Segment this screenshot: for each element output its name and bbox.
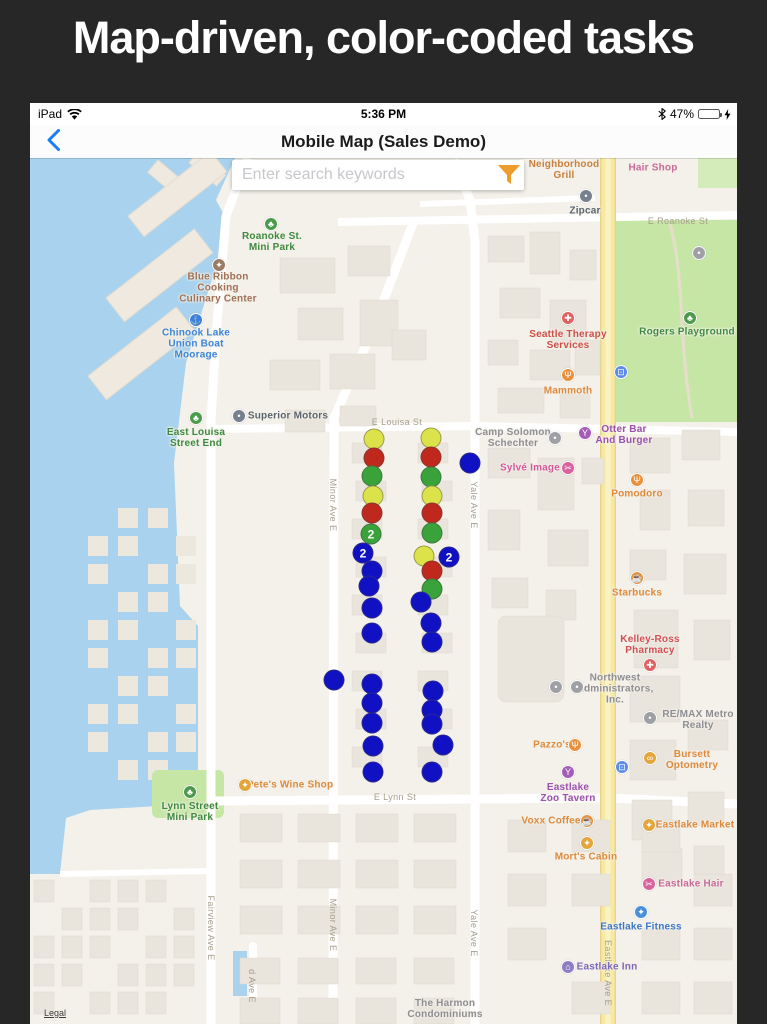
wifi-icon <box>67 109 82 120</box>
poi-icon-eastlake-market: ✦ <box>642 818 656 832</box>
filter-funnel-icon <box>498 165 520 185</box>
task-marker[interactable] <box>421 467 442 488</box>
task-marker[interactable] <box>363 762 384 783</box>
poi-label-re-max-metro-realty: RE/MAX MetroRealty <box>662 709 733 731</box>
poi-icon-starbucks: ☕ <box>630 571 644 585</box>
street-label-minor-ave-e: Minor Ave E <box>328 479 338 532</box>
task-marker[interactable] <box>363 736 384 757</box>
poi-label-kelley-ross-pharmacy: Kelley-RossPharmacy <box>620 634 679 656</box>
poi-icon-otter-bar-and-burger: Y <box>578 426 592 440</box>
poi-icon-east-louisa-street-end: ♣ <box>189 411 203 425</box>
poi-icon-roanoke-st-mini-park: ♣ <box>264 217 278 231</box>
task-marker[interactable] <box>433 735 454 756</box>
map-overlay: NeighborhoodGrillHair ShopZipcar•Rogers … <box>30 158 737 1024</box>
poi-label-seattle-therapy-services: Seattle TherapyServices <box>529 329 606 351</box>
poi-icon-pomodoro: Ψ <box>630 473 644 487</box>
task-marker[interactable] <box>421 447 442 468</box>
bluetooth-icon <box>658 108 666 120</box>
poi-label-eastlake-hair: Eastlake Hair <box>658 879 723 890</box>
task-marker[interactable] <box>422 523 443 544</box>
search-bar <box>232 160 524 190</box>
poi-label-neighborhood-grill: NeighborhoodGrill <box>529 159 600 181</box>
poi-label-bursett-optometry: BursettOptometry <box>666 749 718 771</box>
poi-label-zipcar: Zipcar <box>569 206 600 217</box>
poi-label-mammoth: Mammoth <box>544 386 593 397</box>
street-label-e-lynn-st: E Lynn St <box>374 792 416 802</box>
charging-bolt-icon <box>724 109 731 120</box>
poi-icon-office-dot-2: • <box>570 680 584 694</box>
poi-icon-mort-s-cabin: ✦ <box>580 836 594 850</box>
street-label-d-ave-e: d Ave E <box>247 969 257 1003</box>
battery-percent-label: 47% <box>670 107 694 121</box>
page-title: Mobile Map (Sales Demo) <box>30 125 737 158</box>
task-marker[interactable] <box>324 670 345 691</box>
poi-label-eastlake-inn: Eastlake Inn <box>577 962 638 973</box>
poi-label-eastlake-zoo-tavern: EastlakeZoo Tavern <box>540 782 595 804</box>
street-label-minor-ave-e: Minor Ave E <box>328 899 338 952</box>
poi-icon-rogers-playground: ♣ <box>683 311 697 325</box>
task-marker[interactable] <box>421 428 442 449</box>
poi-label-northwest-administrators-inc: NorthwestAdministrators,Inc. <box>577 673 654 706</box>
poi-icon-zipcar: • <box>579 189 593 203</box>
poi-label-the-harmon-condominiums: The HarmonCondominiums <box>407 998 482 1020</box>
poi-icon-re-max-metro-realty: • <box>643 711 657 725</box>
poi-label-camp-solomon-schechter: Camp SolomonSchechter <box>475 427 551 449</box>
ipad-screenshot: iPad 5:36 PM 47% <box>30 103 737 1024</box>
legal-link[interactable]: Legal <box>44 1008 66 1018</box>
poi-label-eastlake-market: Eastlake Market <box>656 820 735 831</box>
street-label-yale-ave-e: Yale Ave E <box>469 481 479 528</box>
poi-label-superior-motors: Superior Motors <box>248 411 328 422</box>
banner-title: Map-driven, color-coded tasks <box>73 12 694 64</box>
poi-label-mort-s-cabin: Mort's Cabin <box>555 852 618 863</box>
poi-icon-seattle-therapy-services: ✚ <box>561 311 575 325</box>
street-label-e-louisa-st: E Louisa St <box>372 417 422 427</box>
task-marker[interactable] <box>362 623 383 644</box>
poi-icon-voxx-coffee: ☕ <box>580 814 594 828</box>
poi-icon-eastlake-hair: ✂ <box>642 877 656 891</box>
poi-icon-kelley-ross-pharmacy: ✚ <box>643 658 657 672</box>
task-marker[interactable] <box>423 681 444 702</box>
poi-icon-pete-s-wine-shop: ✦ <box>238 778 252 792</box>
poi-label-pazzo-s: Pazzo's <box>533 740 571 751</box>
poi-label-starbucks: Starbucks <box>612 588 662 599</box>
nav-bar: Mobile Map (Sales Demo) <box>30 125 737 158</box>
task-marker[interactable] <box>411 592 432 613</box>
poi-icon-eastlake-zoo-tavern: Y <box>561 765 575 779</box>
poi-label-lynn-street-mini-park: Lynn StreetMini Park <box>162 801 219 823</box>
poi-label-voxx-coffee: Voxx Coffee <box>521 816 580 827</box>
task-marker[interactable] <box>422 503 443 524</box>
poi-icon-camp-solomon-schechter: • <box>548 431 562 445</box>
task-marker[interactable] <box>362 713 383 734</box>
poi-label-eastlake-fitness: Eastlake Fitness <box>600 922 682 933</box>
task-marker[interactable] <box>359 576 380 597</box>
clock: 5:36 PM <box>361 103 406 125</box>
poi-icon-lynn-street-mini-park: ♣ <box>183 785 197 799</box>
task-marker[interactable] <box>422 762 443 783</box>
task-marker[interactable] <box>362 674 383 695</box>
task-marker[interactable] <box>362 503 383 524</box>
street-label-e-roanoke-st: E Roanoke St <box>648 216 708 226</box>
poi-icon-transit-stop-1: ⊡ <box>614 365 628 379</box>
poi-icon-park-restroom: • <box>692 246 706 260</box>
task-marker[interactable] <box>362 466 383 487</box>
poi-label-east-louisa-street-end: East LouisaStreet End <box>167 427 225 449</box>
poi-icon-transit-stop-2: ⊡ <box>615 760 629 774</box>
task-marker[interactable] <box>460 453 481 474</box>
poi-icon-office-dot-1: • <box>549 680 563 694</box>
search-input[interactable] <box>232 160 494 190</box>
task-marker[interactable] <box>362 598 383 619</box>
task-marker[interactable] <box>362 693 383 714</box>
poi-icon-eastlake-fitness: ✦ <box>634 905 648 919</box>
marketing-banner: Map-driven, color-coded tasks <box>0 0 767 103</box>
poi-label-pete-s-wine-shop: Pete's Wine Shop <box>247 780 334 791</box>
filter-button[interactable] <box>494 160 524 190</box>
street-label-yale-ave-e: Yale Ave E <box>469 909 479 956</box>
poi-icon-mammoth: Ψ <box>561 368 575 382</box>
poi-label-hair-shop: Hair Shop <box>628 163 677 174</box>
poi-label-blue-ribbon-cooking-culinary-center: Blue RibbonCookingCulinary Center <box>179 272 256 305</box>
battery-icon <box>698 109 720 119</box>
poi-icon-pazzo-s: Ψ <box>568 738 582 752</box>
task-marker[interactable] <box>421 613 442 634</box>
poi-label-sylv-image: Sylvé Image <box>500 463 560 474</box>
task-marker[interactable] <box>364 429 385 450</box>
street-label-fairview-ave-e: Fairview Ave E <box>206 896 216 961</box>
carrier-label: iPad <box>38 107 62 121</box>
task-marker[interactable] <box>422 632 443 653</box>
task-marker[interactable] <box>422 714 443 735</box>
map[interactable]: NeighborhoodGrillHair ShopZipcar•Rogers … <box>30 158 737 1024</box>
poi-label-pomodoro: Pomodoro <box>611 489 663 500</box>
poi-icon-blue-ribbon-cooking-culinary-center: ✦ <box>212 258 226 272</box>
poi-icon-sylv-image: ✂ <box>561 461 575 475</box>
task-marker[interactable]: 2 <box>361 524 382 545</box>
street-label-eastlake-ave-e: Eastlake Ave E <box>603 940 613 1006</box>
poi-label-roanoke-st-mini-park: Roanoke St.Mini Park <box>242 231 302 253</box>
poi-label-rogers-playground: Rogers Playground <box>639 327 735 338</box>
poi-icon-superior-motors: • <box>232 409 246 423</box>
status-bar: iPad 5:36 PM 47% <box>30 103 737 125</box>
poi-label-otter-bar-and-burger: Otter BarAnd Burger <box>596 424 653 446</box>
poi-label-chinook-lake-union-boat-moorage: Chinook LakeUnion BoatMoorage <box>162 328 230 361</box>
poi-icon-eastlake-inn: ⌂ <box>561 960 575 974</box>
task-marker[interactable]: 2 <box>439 547 460 568</box>
poi-icon-chinook-lake-union-boat-moorage: ⚓ <box>189 313 203 327</box>
poi-icon-bursett-optometry: ∞ <box>643 751 657 765</box>
